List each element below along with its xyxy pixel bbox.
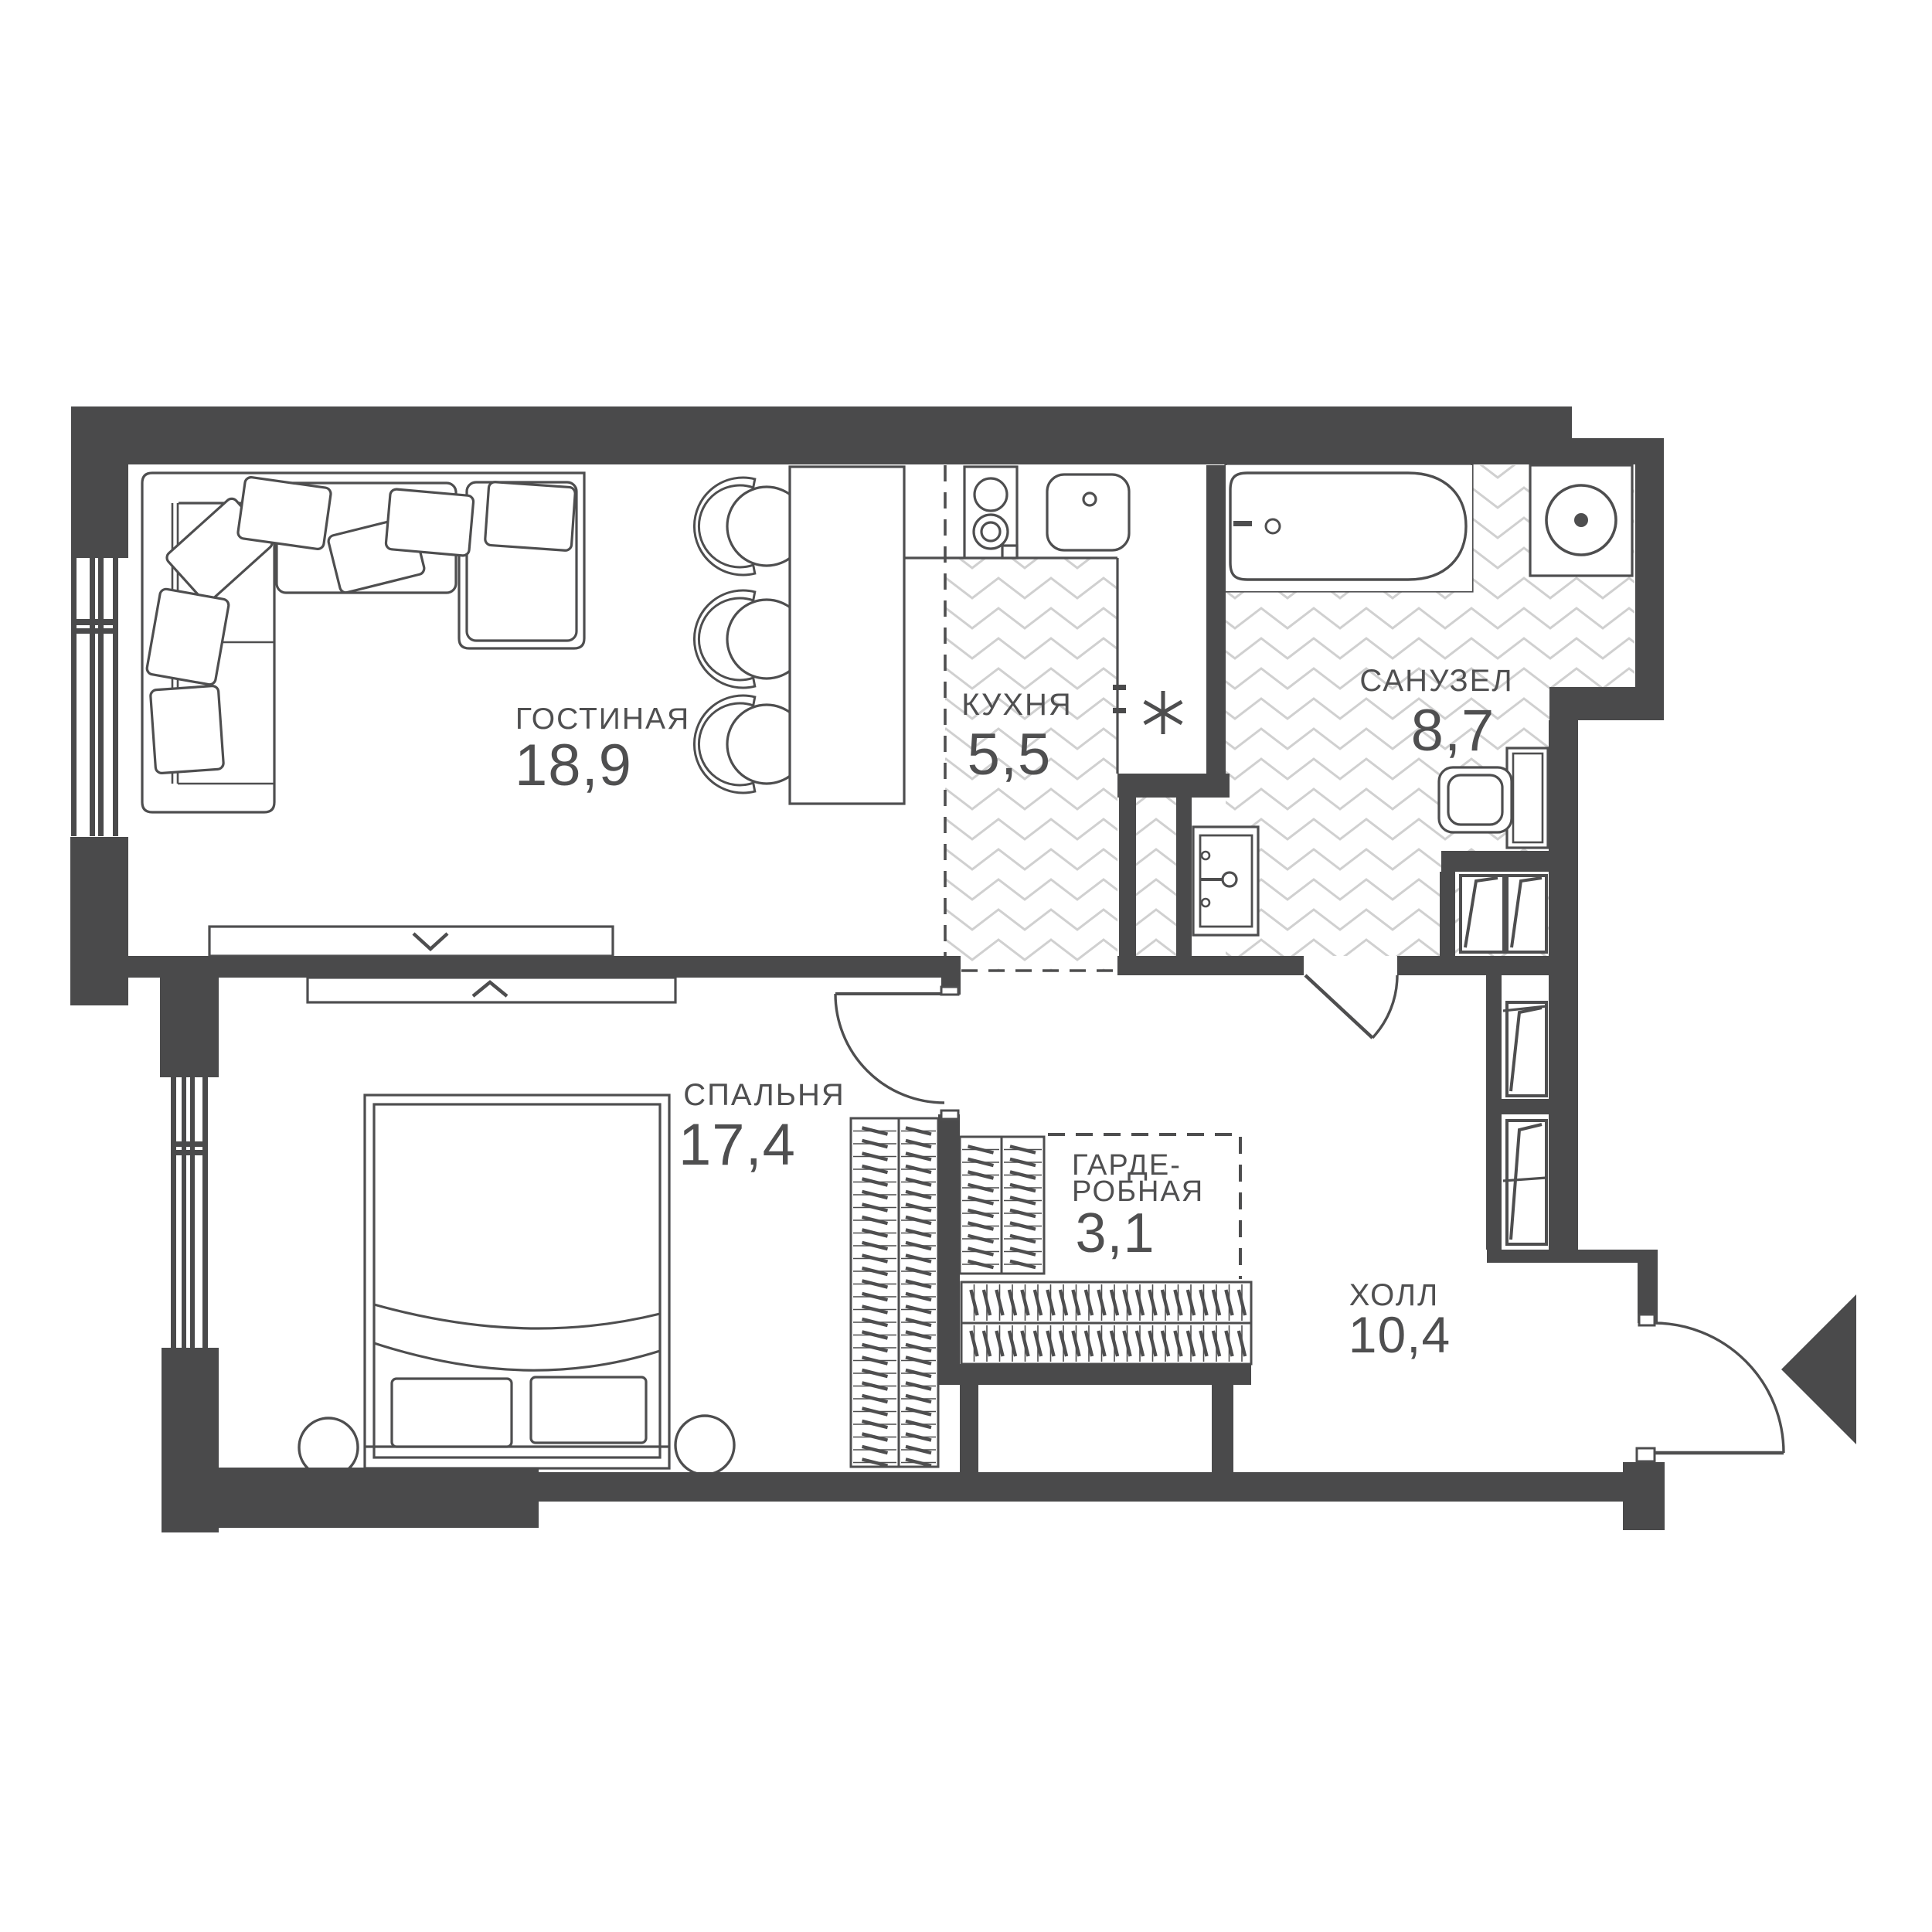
svg-text:18,9: 18,9 [515, 733, 632, 798]
svg-text:КУХНЯ: КУХНЯ [961, 688, 1073, 722]
svg-text:СПАЛЬНЯ: СПАЛЬНЯ [683, 1078, 845, 1112]
svg-text:3,1: 3,1 [1075, 1202, 1155, 1264]
svg-text:17,4: 17,4 [679, 1112, 796, 1178]
svg-text:САНУЗЕЛ: САНУЗЕЛ [1359, 664, 1513, 698]
svg-text:8,7: 8,7 [1411, 698, 1495, 764]
svg-text:10,4: 10,4 [1349, 1306, 1451, 1363]
svg-text:ГОСТИНАЯ: ГОСТИНАЯ [515, 702, 690, 736]
svg-text:5,5: 5,5 [968, 722, 1052, 787]
